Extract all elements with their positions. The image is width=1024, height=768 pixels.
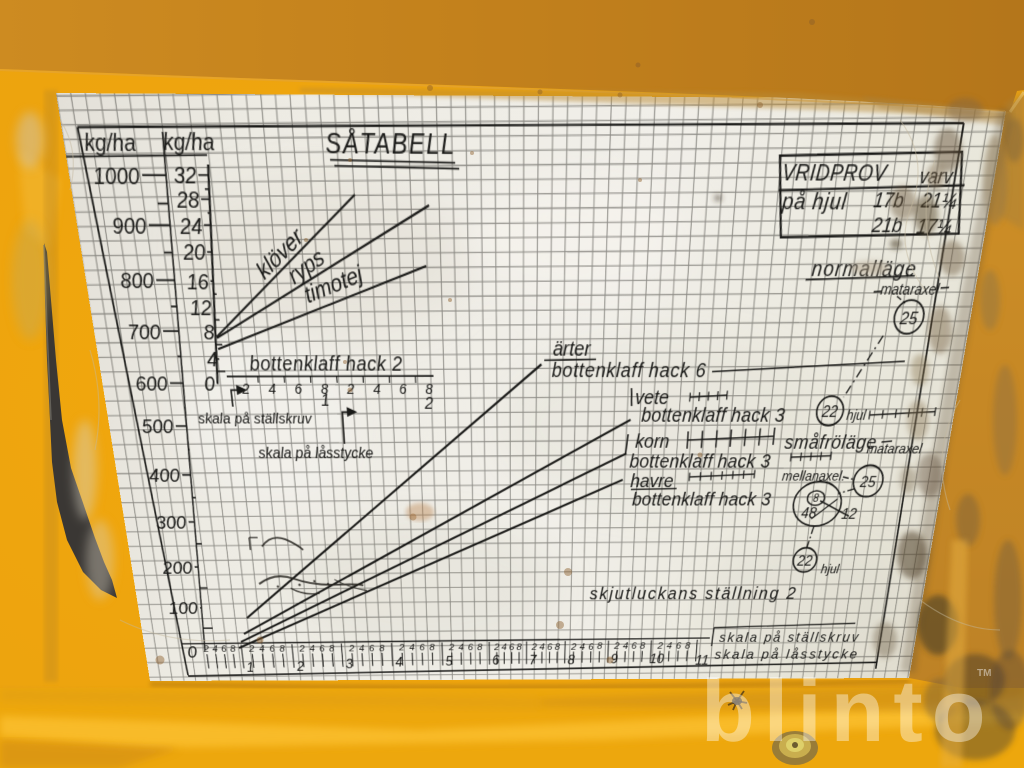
svg-text:blinto: blinto (701, 661, 994, 760)
svg-text:TM: TM (977, 668, 991, 679)
